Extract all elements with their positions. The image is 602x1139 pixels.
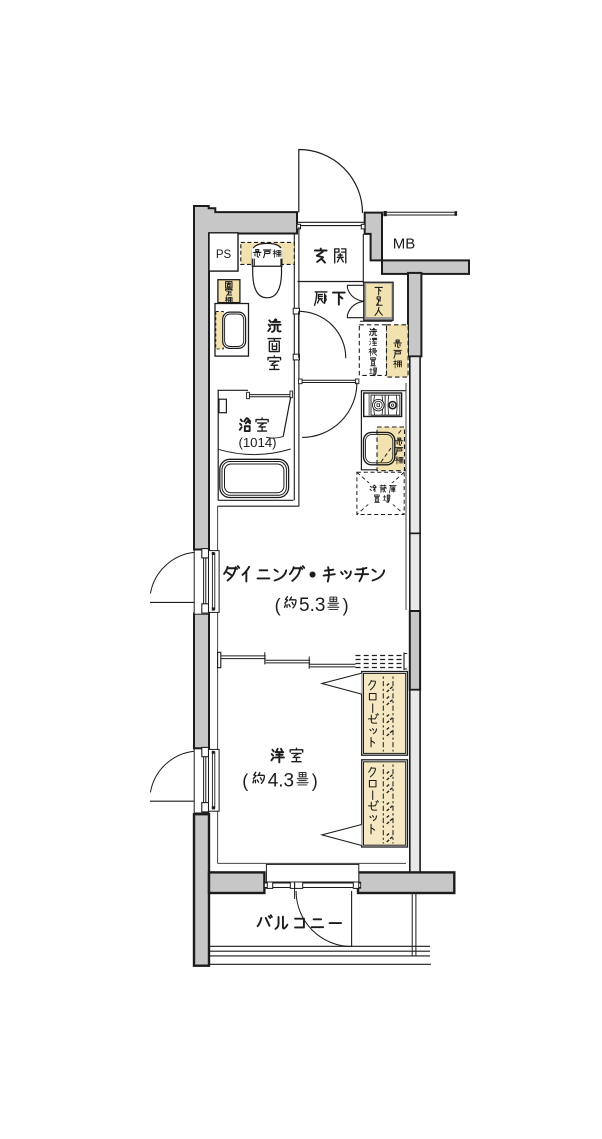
svg-text:(1014): (1014) — [238, 435, 276, 450]
svg-text:4.3: 4.3 — [268, 770, 294, 791]
svg-text:5.3: 5.3 — [299, 595, 325, 616]
svg-text:(: ( — [275, 595, 281, 615]
svg-text:PS: PS — [216, 249, 232, 261]
svg-text:MB: MB — [393, 236, 416, 253]
svg-text:(: ( — [242, 771, 248, 791]
svg-text:): ) — [312, 771, 318, 791]
svg-text:): ) — [343, 595, 349, 615]
